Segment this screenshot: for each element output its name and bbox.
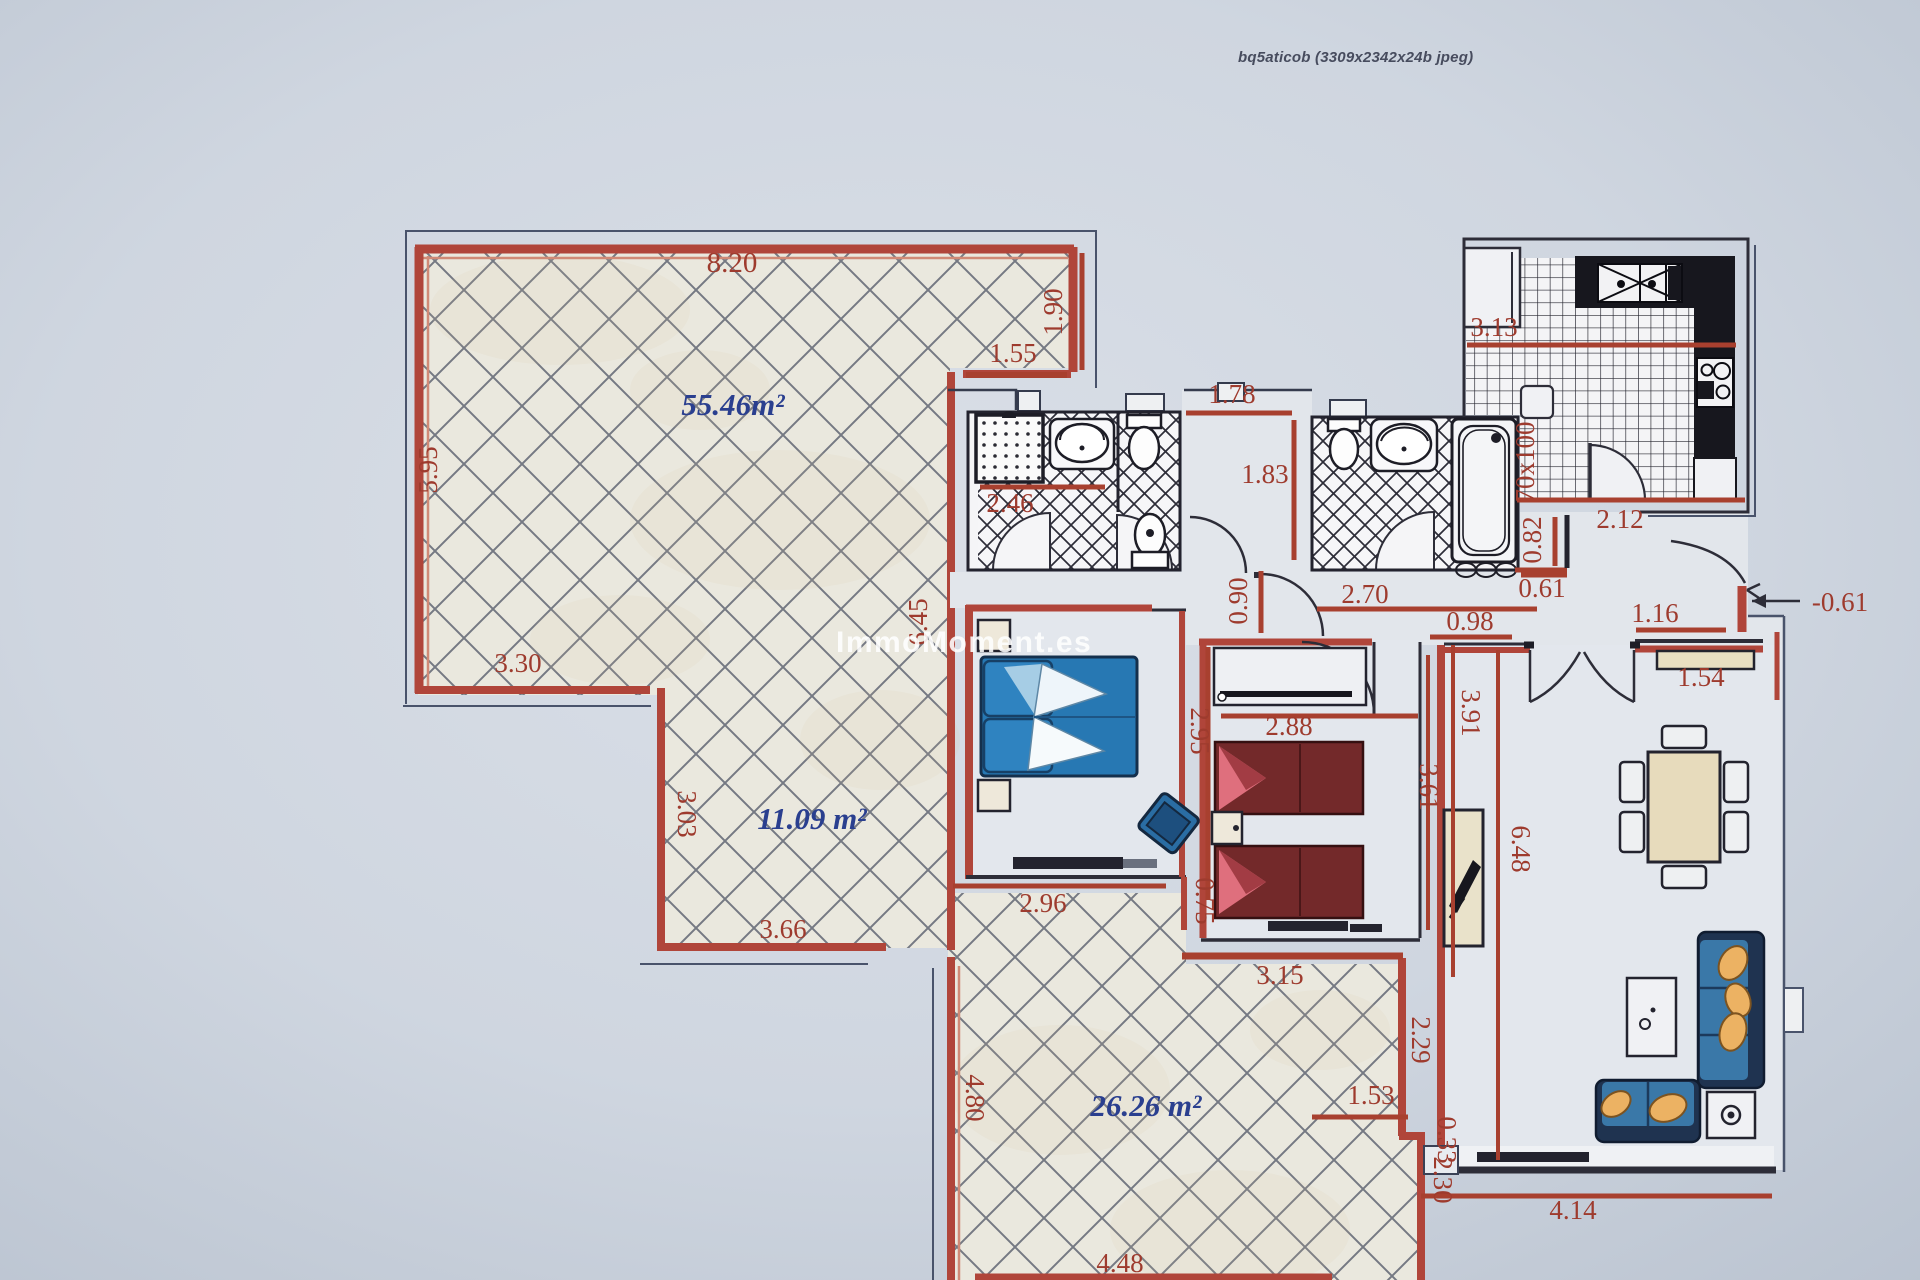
- svg-text:0.82: 0.82: [1517, 516, 1547, 563]
- svg-text:1.54: 1.54: [1677, 662, 1725, 692]
- svg-text:2.30: 2.30: [1428, 1156, 1458, 1203]
- svg-text:2.12: 2.12: [1596, 504, 1643, 534]
- svg-text:2.95: 2.95: [1185, 707, 1215, 754]
- svg-text:2.46: 2.46: [986, 488, 1033, 518]
- svg-text:55.46m²: 55.46m²: [681, 387, 785, 422]
- svg-text:4.14: 4.14: [1549, 1195, 1597, 1225]
- svg-text:3.13: 3.13: [1470, 312, 1517, 342]
- svg-text:3.15: 3.15: [1256, 960, 1303, 990]
- svg-text:1.55: 1.55: [989, 338, 1036, 368]
- svg-text:3.30: 3.30: [494, 648, 541, 678]
- svg-text:11.09 m²: 11.09 m²: [757, 801, 867, 836]
- svg-text:1.78: 1.78: [1208, 379, 1255, 409]
- svg-text:8.20: 8.20: [707, 247, 758, 279]
- svg-text:6.48: 6.48: [1506, 825, 1536, 872]
- svg-text:5.95: 5.95: [413, 446, 443, 493]
- svg-text:4.80: 4.80: [960, 1074, 990, 1121]
- svg-text:2.96: 2.96: [1019, 888, 1066, 918]
- svg-text:4.48: 4.48: [1096, 1248, 1143, 1278]
- svg-text:1.53: 1.53: [1347, 1080, 1394, 1110]
- svg-text:1.83: 1.83: [1241, 459, 1288, 489]
- svg-text:2.70: 2.70: [1341, 579, 1388, 609]
- svg-text:2.29: 2.29: [1406, 1016, 1436, 1063]
- svg-text:0.61: 0.61: [1518, 573, 1565, 603]
- svg-text:2.88: 2.88: [1265, 711, 1312, 741]
- svg-text:1.16: 1.16: [1631, 598, 1678, 628]
- svg-text:0.75: 0.75: [1190, 877, 1220, 924]
- svg-text:70x100: 70x100: [1510, 422, 1540, 503]
- svg-text:1.90: 1.90: [1038, 288, 1068, 335]
- svg-text:bq5aticob (3309x2342x24b jpeg): bq5aticob (3309x2342x24b jpeg): [1238, 49, 1473, 66]
- svg-text:3.03: 3.03: [672, 790, 702, 837]
- svg-text:3.66: 3.66: [759, 914, 806, 944]
- svg-text:3.91: 3.91: [1456, 689, 1486, 736]
- svg-text:3.61: 3.61: [1414, 763, 1444, 810]
- svg-text:-0.61: -0.61: [1812, 587, 1868, 617]
- svg-text:ImmoMoment.es: ImmoMoment.es: [836, 626, 1092, 659]
- svg-text:0.90: 0.90: [1223, 577, 1253, 624]
- svg-text:0.98: 0.98: [1446, 606, 1493, 636]
- svg-text:26.26 m²: 26.26 m²: [1090, 1088, 1203, 1123]
